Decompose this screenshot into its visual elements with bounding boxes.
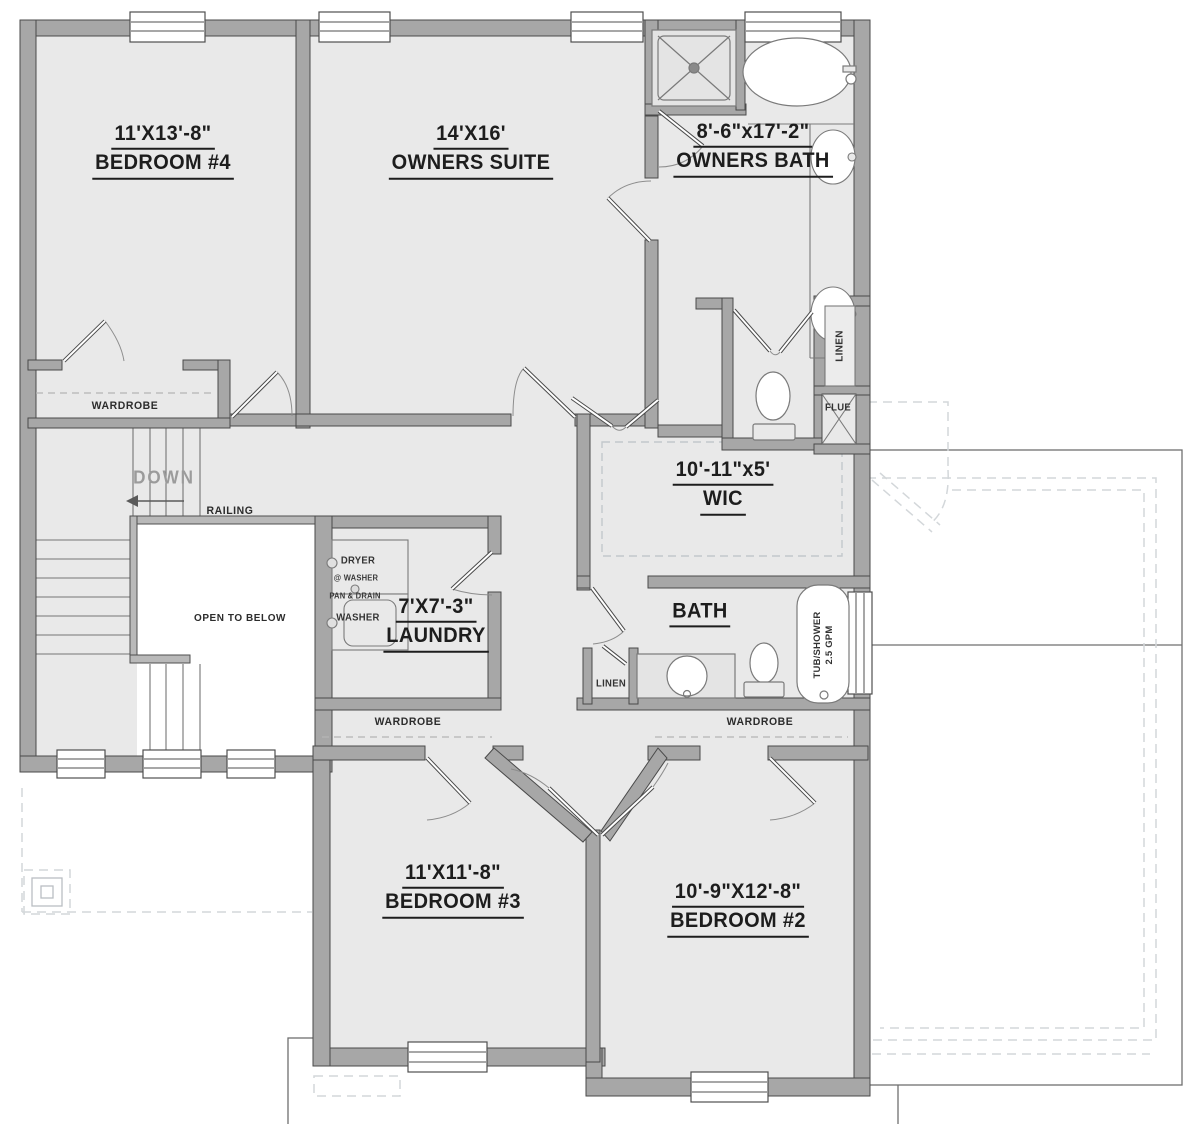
laundry-dims: 7'X7'-3" bbox=[396, 594, 477, 623]
flue-box bbox=[822, 394, 856, 444]
linen-label-bath: LINEN bbox=[596, 679, 626, 690]
tub-shower-flow: 2.5 GPM bbox=[824, 612, 836, 679]
stairs-down-label: DOWN bbox=[133, 468, 195, 489]
room-label-bedroom2: 10'-9"X12'-8" BEDROOM #2 bbox=[667, 879, 808, 938]
laundry-name: LAUNDRY bbox=[383, 623, 488, 652]
tub-shower-label: TUB/SHOWER 2.5 GPM bbox=[812, 612, 836, 679]
room-label-owners-bath: 8'-6"x17'-2" OWNERS BATH bbox=[673, 119, 832, 178]
bath-name: BATH bbox=[669, 598, 730, 627]
room-label-wic: 10'-11"x5' WIC bbox=[673, 457, 774, 516]
owners-suite-dims: 14'X16' bbox=[433, 121, 509, 150]
bedroom2-dims: 10'-9"X12'-8" bbox=[672, 879, 804, 908]
open-to-below-label: OPEN TO BELOW bbox=[194, 612, 286, 624]
bedroom4-name: BEDROOM #4 bbox=[92, 150, 233, 179]
room-label-bedroom3: 11'X11'-8" BEDROOM #3 bbox=[382, 860, 523, 919]
floor-plan: 11'X13'-8" BEDROOM #4 14'X16' OWNERS SUI… bbox=[0, 0, 1200, 1124]
pan-drain-label: PAN & DRAIN bbox=[329, 592, 380, 601]
bedroom3-dims: 11'X11'-8" bbox=[402, 860, 504, 889]
washer-label: WASHER bbox=[336, 613, 379, 624]
open-to-below-area bbox=[137, 524, 315, 756]
wardrobe-label-bedroom2: WARDROBE bbox=[727, 716, 794, 728]
room-label-owners-suite: 14'X16' OWNERS SUITE bbox=[389, 121, 553, 180]
tub-shower-text: TUB/SHOWER bbox=[812, 612, 824, 679]
dryer-label: DRYER bbox=[341, 556, 375, 567]
flue-label: FLUE bbox=[825, 403, 851, 414]
room-label-bath: BATH bbox=[669, 598, 730, 627]
wardrobe-label-bedroom4: WARDROBE bbox=[92, 400, 159, 412]
bedroom3-name: BEDROOM #3 bbox=[382, 889, 523, 918]
owners-bath-name: OWNERS BATH bbox=[673, 148, 832, 177]
shower bbox=[652, 30, 736, 106]
porch-column bbox=[32, 878, 62, 906]
bedroom2-name: BEDROOM #2 bbox=[667, 908, 808, 937]
owners-bath-dims: 8'-6"x17'-2" bbox=[694, 119, 813, 148]
bath-vanity-sink bbox=[637, 654, 735, 698]
owners-suite-name: OWNERS SUITE bbox=[389, 150, 553, 179]
garage-outline bbox=[868, 450, 1182, 1085]
bedroom4-dims: 11'X13'-8" bbox=[112, 121, 215, 150]
wardrobe-label-bedroom3: WARDROBE bbox=[375, 716, 442, 728]
linen-label-hall: LINEN bbox=[835, 330, 846, 362]
wic-dims: 10'-11"x5' bbox=[673, 457, 774, 486]
railing-label: RAILING bbox=[207, 505, 254, 517]
room-label-bedroom4: 11'X13'-8" BEDROOM #4 bbox=[92, 121, 233, 180]
wic-name: WIC bbox=[700, 486, 746, 515]
room-label-laundry: 7'X7'-3" LAUNDRY bbox=[383, 594, 488, 653]
dryer-note-label: @ WASHER bbox=[334, 574, 378, 583]
